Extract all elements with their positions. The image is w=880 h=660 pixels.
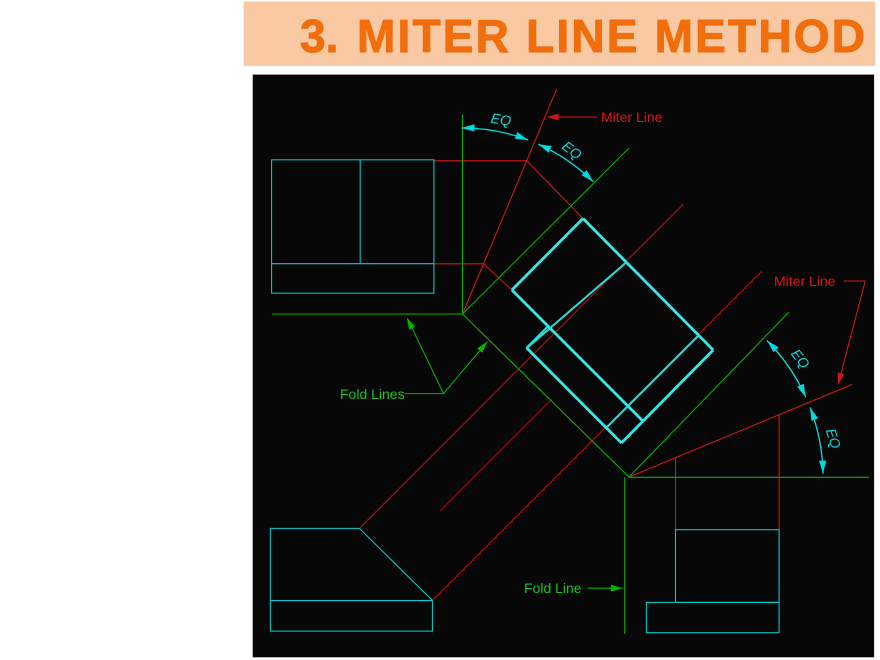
svg-text:Fold Lines: Fold Lines [340,386,405,402]
svg-text:MITER LINE METHOD: MITER LINE METHOD [357,10,867,62]
svg-text:Miter Line: Miter Line [774,273,836,289]
svg-text:3.: 3. [300,10,338,62]
svg-text:Miter Line: Miter Line [601,109,663,125]
svg-text:Fold Line: Fold Line [524,580,582,596]
